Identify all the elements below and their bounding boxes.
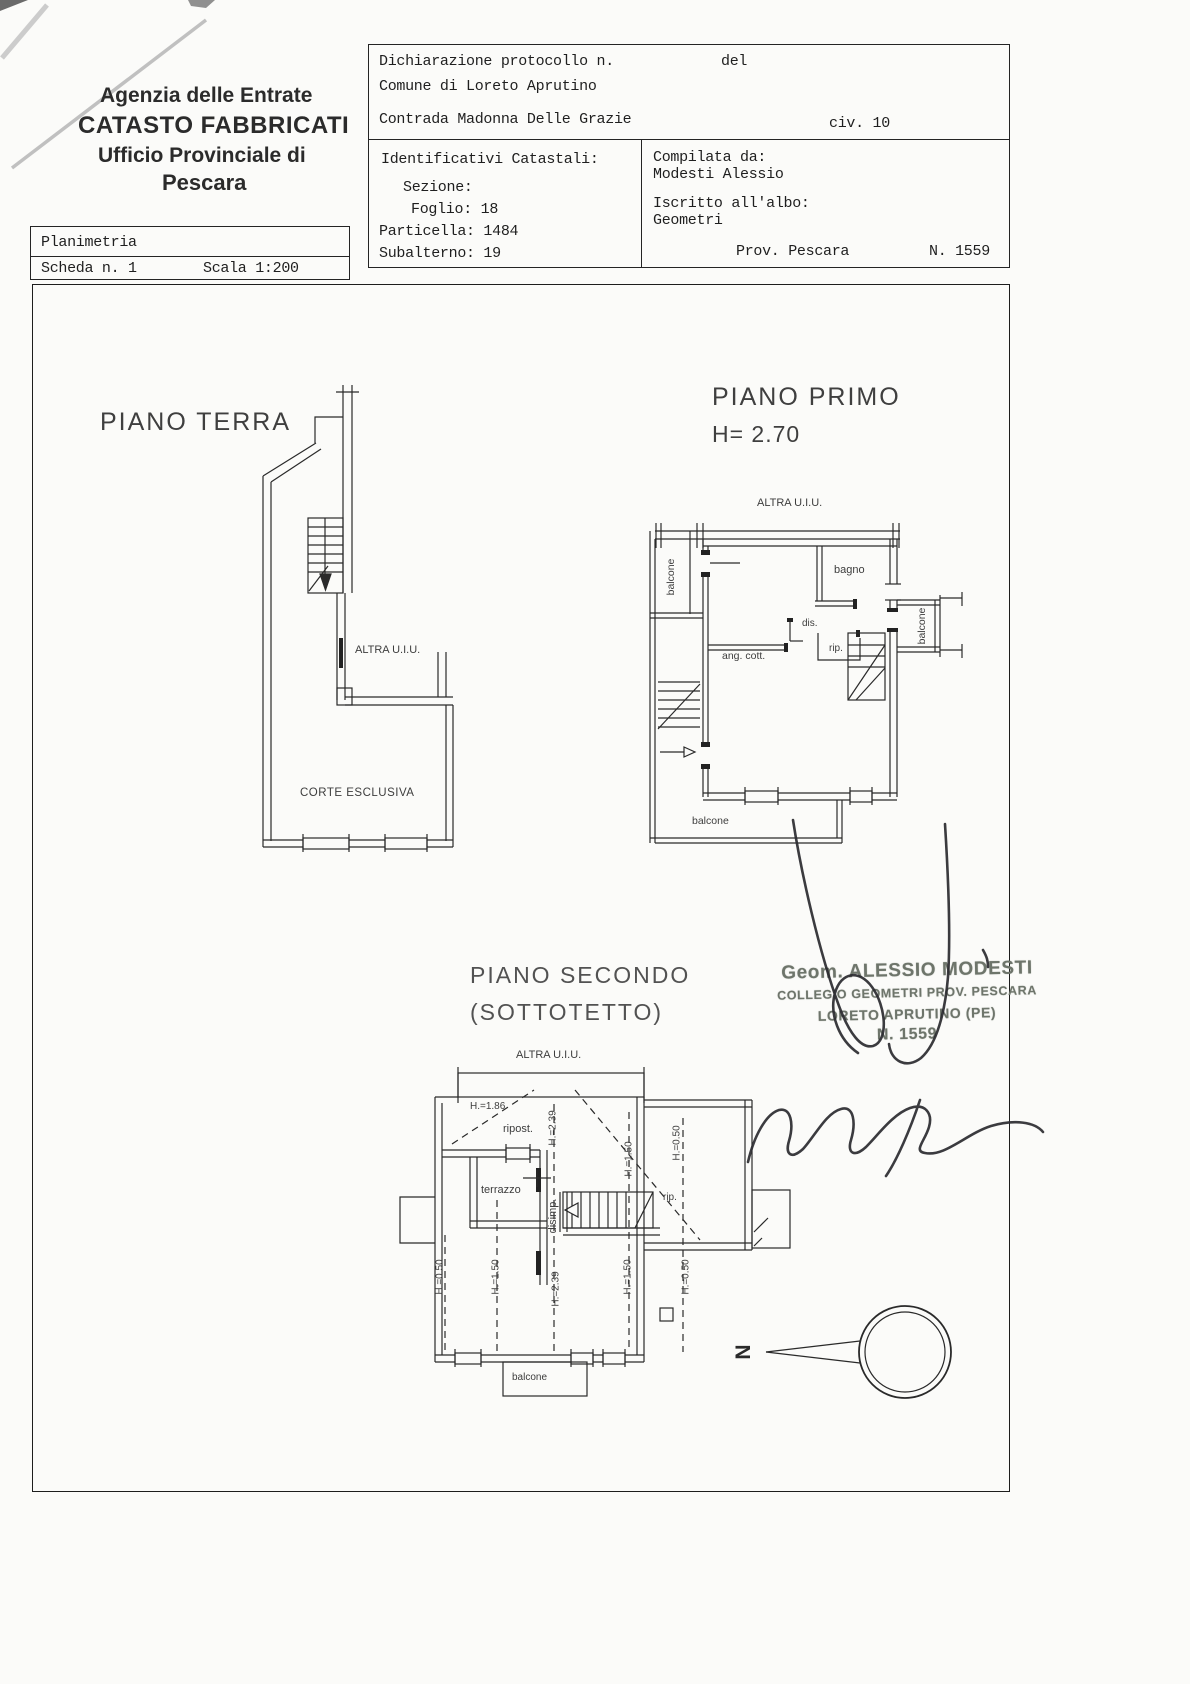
signature-ink [0,0,1190,1684]
cadastral-plan-document: Agenzia delle Entrate CATASTO FABBRICATI… [0,0,1190,1684]
